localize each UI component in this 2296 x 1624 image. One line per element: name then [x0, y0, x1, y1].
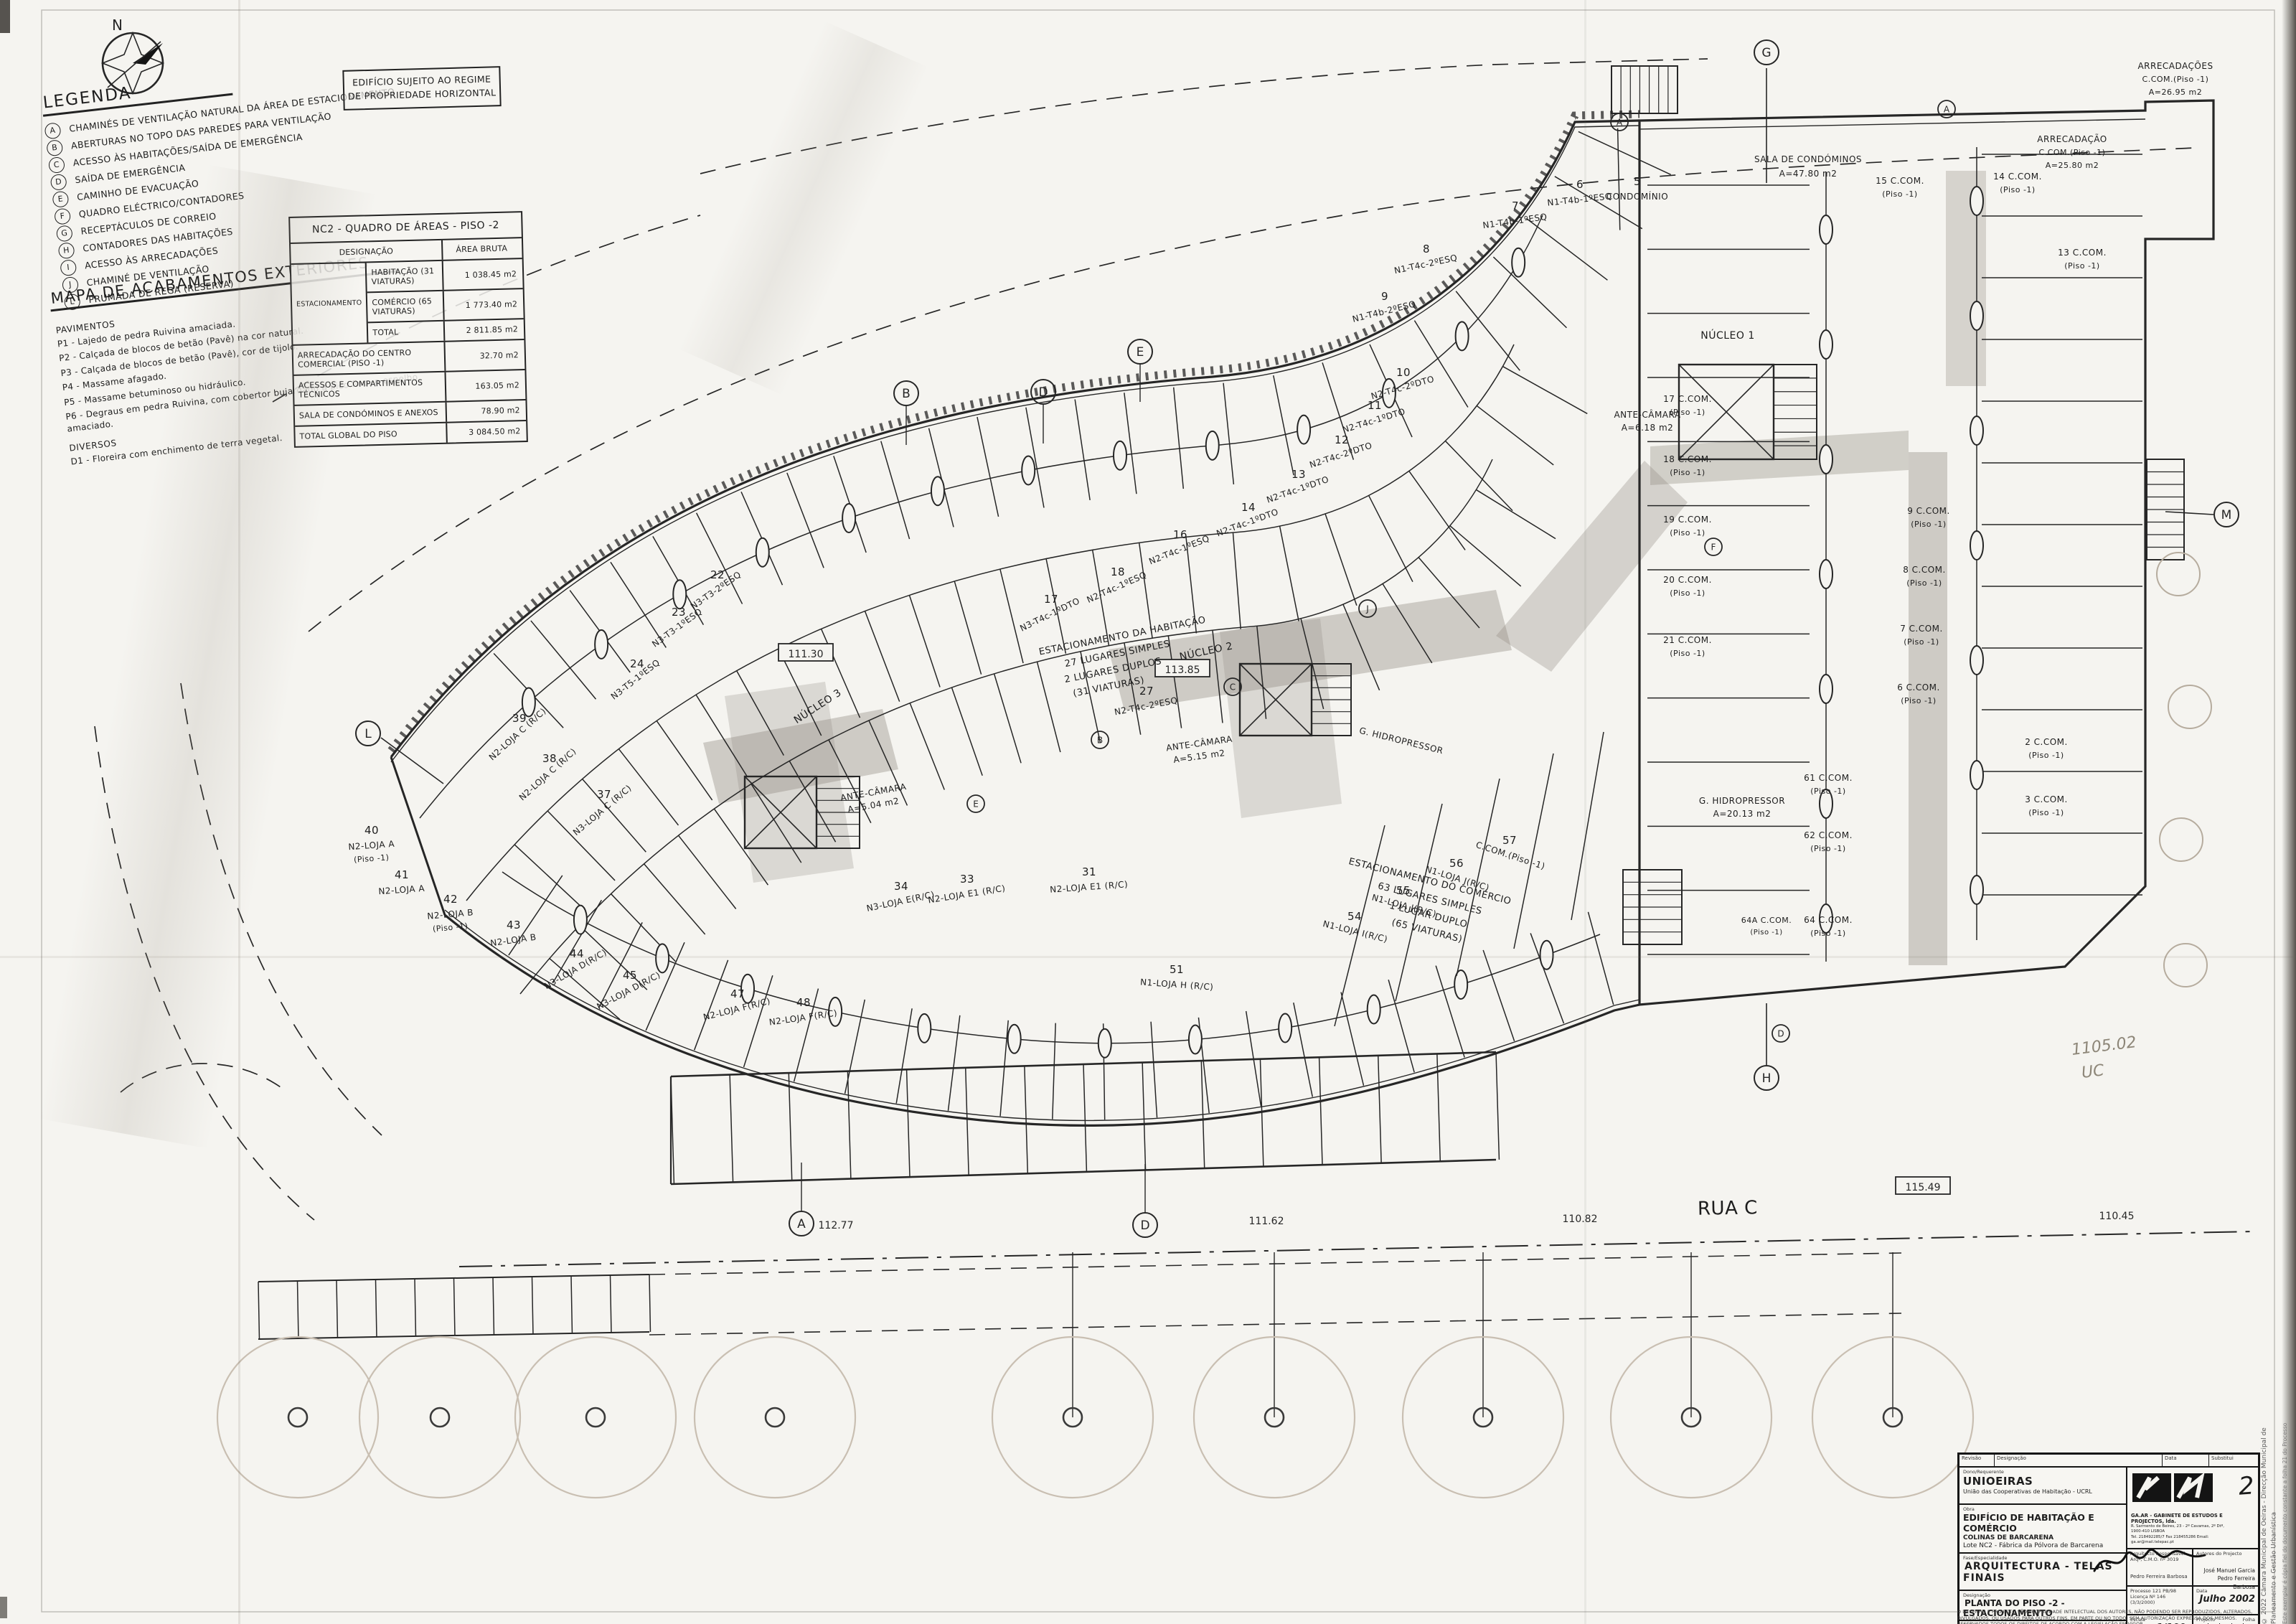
plan-label: 2 C.COM.	[2025, 737, 2068, 747]
work-name: EDIFÍCIO DE HABITAÇÃO E COMÉRCIO	[1963, 1512, 2094, 1534]
plan-label: 16	[1173, 528, 1187, 541]
grid-marker: G	[1761, 46, 1771, 60]
plan-label: N2-LOJA E1 (R/C)	[1050, 879, 1129, 895]
plan-label: (Piso -1)	[2028, 808, 2064, 817]
grid-marker: M	[2221, 508, 2232, 522]
scanned-sheet: GBDELMADHAABCDEFJ111.30113.85115.49112.7…	[0, 0, 2296, 1624]
plan-label: 47	[730, 987, 745, 1000]
plan-label: 14	[1241, 501, 1256, 514]
title-block: Revisão Designação Data Substitui Dono/R…	[1957, 1452, 2260, 1624]
plan-label: N2-LOJA A	[348, 839, 395, 852]
plan-label: 7 C.COM.	[1900, 624, 1943, 634]
plan-label: (Piso -1)	[354, 853, 390, 864]
plan-label: 8 C.COM.	[1903, 565, 1946, 575]
plan-label: 7	[1512, 200, 1519, 212]
firm-name: GA.AR - GABINETE DE ESTUDOS E PROJECTOS,…	[2131, 1513, 2231, 1524]
plan-label: (Piso -1)	[2064, 261, 2099, 271]
plan-label: 5	[1634, 175, 1641, 188]
table-row: COMÉRCIO (65 VIATURAS) 1 773.40 m2	[367, 289, 524, 323]
plan-label: 13	[1291, 468, 1306, 481]
fold-line	[1584, 0, 1586, 1624]
plan-label: 6 C.COM.	[1897, 682, 1940, 693]
plan-label: 54	[1347, 910, 1362, 923]
plan-label: 11	[1368, 399, 1382, 412]
north-arrow-label: N	[112, 17, 123, 34]
horizontal-property-note: EDIFÍCIO SUJEITO AO REGIME DE PROPRIEDAD…	[342, 66, 501, 110]
plan-label: (Piso -1)	[1670, 408, 1705, 417]
plan-label: N2-LOJA B	[489, 932, 537, 949]
work-sub2: Lote NC2 - Fábrica da Pólvora de Barcare…	[1963, 1542, 2103, 1549]
plan-label: 33	[960, 873, 974, 886]
plan-label: 61 C.COM.	[1804, 773, 1853, 783]
firm-cell: GA.AR - GABINETE DE ESTUDOS E PROJECTOS,…	[2127, 1468, 2258, 1549]
plan-label: (Piso -1)	[1670, 588, 1705, 598]
fold-line	[0, 956, 2296, 958]
plan-label: 13 C.COM.	[2058, 248, 2107, 258]
plan-label: C.COM.(Piso -1)	[2039, 148, 2106, 157]
grid-marker: D	[1038, 385, 1048, 400]
plan-label: 19 C.COM.	[1663, 515, 1712, 525]
plan-label: (Piso -1)	[2028, 751, 2064, 760]
plan-label: 51	[1170, 963, 1184, 976]
scan-edge-shadow	[2282, 0, 2296, 1624]
legend-ref-marker: E	[973, 799, 979, 809]
architect-name: Pedro Ferreira Barbosa	[2130, 1574, 2189, 1580]
plan-label: (Piso -1)	[2000, 185, 2035, 194]
plan-label: 9 C.COM.	[1907, 506, 1950, 516]
grid-marker: H	[1762, 1071, 1772, 1086]
plan-label: (Piso -1)	[1670, 468, 1705, 477]
plan-label: 44	[570, 947, 584, 960]
plan-label: 64 C.COM.	[1804, 915, 1853, 925]
grid-marker: A	[797, 1217, 806, 1231]
plan-label: (Piso -1)	[1901, 696, 1936, 705]
plan-label: G. HIDROPRESSOR	[1699, 796, 1785, 806]
dimension-label: 110.82	[1563, 1214, 1598, 1225]
table-row: TOTAL 2 811.85 m2	[368, 319, 524, 342]
plan-label: 31	[1082, 865, 1096, 878]
plan-label: NÚCLEO 1	[1700, 329, 1755, 342]
stamp-line1: © 2022 Câmara Municipal de Oeiras - Dire…	[2260, 1419, 2279, 1624]
grid-marker: L	[364, 727, 372, 741]
plan-label: 45	[623, 969, 637, 982]
plan-label: 48	[796, 996, 811, 1009]
elevation-label: 111.30	[789, 649, 824, 660]
architect-cell: Arquitecto Responsável Arqº, C.M.O. nº 3…	[2127, 1549, 2193, 1585]
plan-label: CONDOMÍNIO	[1606, 191, 1668, 202]
plan-label: N1-LOJA H (R/C)	[1140, 977, 1214, 992]
plan-label: 43	[507, 919, 521, 931]
plan-label: N1-T4c-2ºESQ	[1393, 253, 1459, 276]
legend-ref-marker: F	[1711, 543, 1716, 553]
gaar-logo	[2131, 1472, 2217, 1509]
plan-label: A=25.80 m2	[2046, 161, 2099, 170]
plan-label: N2-LOJA F(R/C)	[768, 1008, 838, 1027]
col-area-bruta: ÁREA BRUTA	[441, 238, 522, 260]
plan-label: (Piso -1)	[1810, 787, 1845, 796]
plan-label: N2-LOJA A	[378, 883, 425, 896]
plan-label: 27	[1139, 685, 1154, 698]
plan-label: RUA C	[1698, 1197, 1758, 1219]
plan-label: 40	[364, 824, 379, 837]
plan-label: G. HIDROPRESSOR	[1358, 726, 1444, 756]
plan-label: 41	[395, 868, 409, 881]
table-row: HABITAÇÃO (31 VIATURAS) 1 038.45 m2	[367, 259, 523, 293]
phase-cell: Fase/Especialidade ARQUITECTURA - TELAS …	[1959, 1554, 2126, 1591]
copyright-note: O DESENHO E PROJECTO SÃO PROPRIEDADE INT…	[1957, 1609, 2266, 1624]
plan-label: A=6.18 m2	[1622, 423, 1674, 433]
plan-label: 12	[1335, 433, 1349, 446]
legend-ref-marker: C	[1230, 682, 1236, 693]
plan-label: 57	[1502, 834, 1517, 847]
dimension-label: 111.62	[1249, 1216, 1284, 1227]
plan-label: 62 C.COM.	[1804, 830, 1853, 840]
plan-label: 64A C.COM.	[1741, 916, 1792, 925]
plan-label: 18	[1111, 565, 1125, 578]
grid-marker: D	[1140, 1219, 1149, 1233]
plan-label: 34	[894, 880, 908, 893]
elevation-label: 115.49	[1906, 1182, 1941, 1193]
work-cell: Obra EDIFÍCIO DE HABITAÇÃO E COMÉRCIO CO…	[1959, 1505, 2126, 1554]
plan-label: N2-LOJA E1 (R/C)	[927, 883, 1006, 906]
plan-label: 18 C.COM.	[1663, 454, 1712, 464]
scan-corner-mark	[0, 0, 10, 33]
plan-label: 6	[1576, 178, 1584, 191]
elevation-label: 113.85	[1165, 665, 1200, 676]
plan-label: (Piso -1)	[1911, 520, 1946, 529]
legend-ref-marker: A	[1944, 105, 1950, 115]
firm-addr2: Tel. 218492285/7 Fax 218455286 Email: ga…	[2131, 1535, 2231, 1546]
scan-corner-mark	[0, 1597, 7, 1618]
plan-label: 17 C.COM.	[1663, 394, 1712, 404]
plan-label: 20 C.COM.	[1663, 575, 1712, 585]
handwritten-sheet-number: 2	[2238, 1471, 2255, 1501]
legend-ref-marker: J	[1365, 604, 1369, 614]
plan-label: C.COM.(Piso -1)	[2142, 75, 2209, 84]
plan-label: (Piso -1)	[1670, 649, 1705, 658]
plan-label: 21 C.COM.	[1663, 635, 1712, 645]
author-1: José Manuel Garcia	[2204, 1567, 2256, 1574]
plan-label: (Piso -1)	[1750, 929, 1782, 937]
plan-label: (Piso -1)	[432, 921, 468, 934]
plan-label: 8	[1423, 243, 1430, 255]
plan-label: N2-LOJA B	[427, 907, 474, 921]
dimension-label: 110.45	[2099, 1211, 2135, 1222]
plan-label: 17	[1044, 593, 1058, 606]
plan-label: A=20.13 m2	[1713, 809, 1772, 819]
legend-ref-marker: A	[1617, 118, 1623, 128]
date-value: Julho 2002	[2196, 1594, 2255, 1605]
plan-label: (Piso -1)	[1904, 637, 1939, 647]
plan-label: A=47.80 m2	[1779, 169, 1838, 179]
client-name: UNIOEIRAS	[1963, 1475, 2033, 1488]
plan-label: 56	[1449, 857, 1464, 870]
legend-ref-marker: D	[1777, 1029, 1784, 1039]
grid-marker: E	[1137, 345, 1144, 360]
legend-ref-marker: B	[1097, 736, 1103, 746]
handwritten-note: UC	[2081, 1061, 2106, 1082]
plan-label: 15 C.COM.	[1876, 176, 1924, 186]
authors-cell: Autores do Projecto José Manuel Garcia P…	[2193, 1549, 2258, 1585]
grid-marker: B	[902, 387, 911, 401]
client-cell: Dono/Requerente UNIOEIRAS União das Coop…	[1959, 1468, 2126, 1505]
firm-addr1: R. Sarmento de Beires, 23 - 2º Cavamas, …	[2131, 1524, 2231, 1535]
handwritten-note: 1105.02	[2071, 1033, 2137, 1059]
plan-label: N3-LOJA E(R/C)	[865, 889, 936, 914]
plan-label: 3 C.COM.	[2025, 794, 2068, 804]
plan-label: ARRECADAÇÃO	[2037, 133, 2107, 144]
plan-label: 42	[443, 893, 458, 906]
client-sub: União das Cooperativas de Habitação - UC…	[1963, 1488, 2092, 1495]
plan-label: (Piso -1)	[1882, 189, 1917, 199]
dimension-label: 112.77	[819, 1220, 854, 1231]
plan-label: 14 C.COM.	[1993, 172, 2042, 182]
plan-label: A=26.95 m2	[2149, 88, 2202, 97]
plan-label: (Piso -1)	[1810, 844, 1845, 853]
plan-label: 10	[1396, 366, 1411, 379]
plan-label: 9	[1381, 290, 1388, 303]
plan-label: (Piso -1)	[1810, 929, 1845, 938]
plan-label: ARRECADAÇÕES	[2137, 60, 2213, 71]
revision-strip: Revisão Designação Data Substitui	[1959, 1455, 2258, 1468]
plan-label: (Piso -1)	[1906, 578, 1942, 588]
work-sub1: COLINAS DE BARCARENA	[1963, 1534, 2053, 1541]
plan-label: (Piso -1)	[1670, 528, 1705, 538]
phase-name: ARQUITECTURA - TELAS FINAIS	[1963, 1555, 2113, 1588]
plan-label: SALA DE CONDÓMINOS	[1754, 154, 1862, 164]
